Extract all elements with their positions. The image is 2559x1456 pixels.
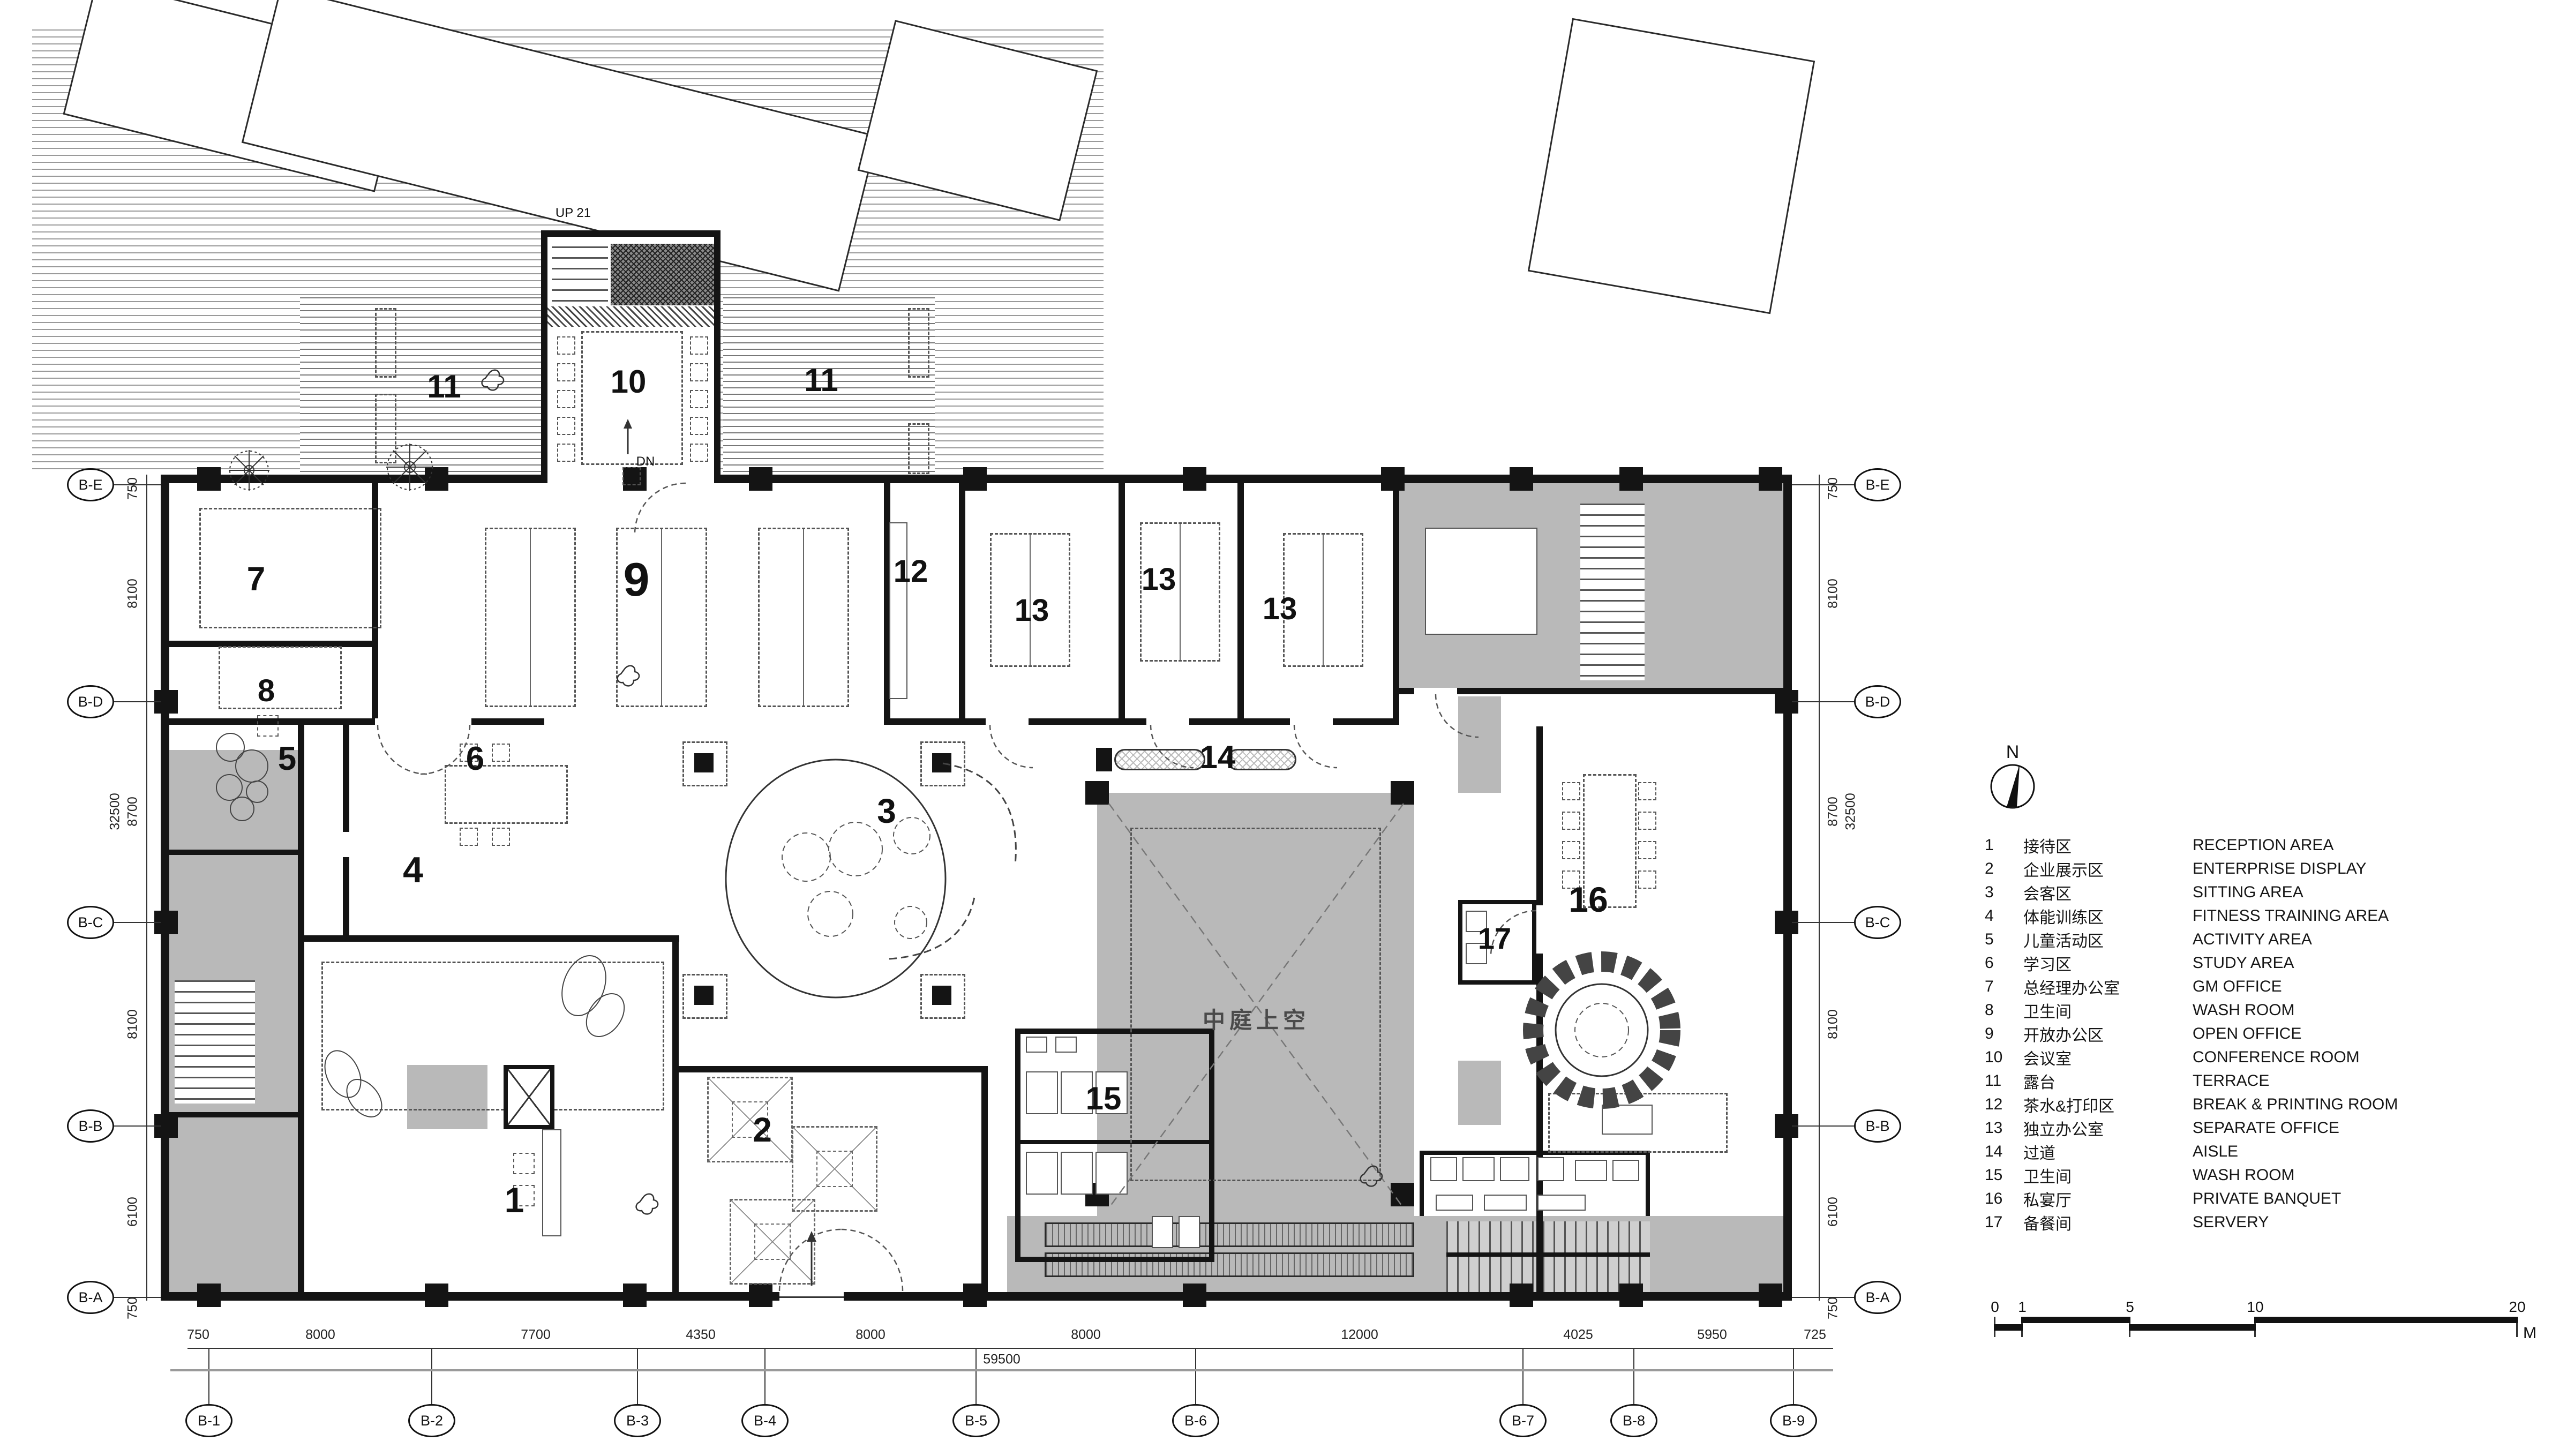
dim-bottom-0: 750: [187, 1329, 209, 1342]
grid-bubble-b4: B-4: [741, 1404, 789, 1437]
grid-bubble-bb-left: B-B: [67, 1109, 114, 1143]
dim-right-3: 8100: [1827, 1009, 1840, 1039]
legend-en: STUDY AREA: [2193, 954, 2413, 972]
dim-bottom-6: 12000: [1341, 1329, 1378, 1342]
dim-right-total: 32500: [1844, 793, 1858, 830]
legend-no: 2: [1985, 860, 2023, 878]
legend-row: 10会议室CONFERENCE ROOM: [1985, 1046, 2413, 1069]
legend-row: 15卫生间WASH ROOM: [1985, 1164, 2413, 1187]
legend-no: 17: [1985, 1213, 2023, 1232]
dim-left-0: 750: [126, 477, 140, 500]
stair-up-label: UP 21: [556, 207, 591, 220]
legend-en: TERRACE: [2193, 1072, 2413, 1090]
legend-zh: 过道: [2023, 1140, 2193, 1164]
grid-bubble-b6: B-6: [1172, 1404, 1219, 1437]
room-label-5: 5: [278, 742, 296, 776]
dimension-line-bottom: [187, 1348, 1833, 1349]
legend-zh: 备餐间: [2023, 1211, 2193, 1234]
legend-zh: 独立办公室: [2023, 1116, 2193, 1140]
legend-zh: 体能训练区: [2023, 904, 2193, 928]
dim-right-2: 8700: [1827, 797, 1840, 827]
legend-zh: 企业展示区: [2023, 857, 2193, 881]
legend-en: PRIVATE BANQUET: [2193, 1190, 2413, 1208]
north-arrow-icon: [1991, 765, 2034, 808]
legend-row: 16私宴厅PRIVATE BANQUET: [1985, 1187, 2413, 1211]
legend-en: SERVERY: [2193, 1213, 2413, 1232]
dim-left-4: 6100: [126, 1197, 140, 1227]
legend-row: 17备餐间SERVERY: [1985, 1211, 2413, 1234]
legend: 1接待区RECEPTION AREA 2企业展示区ENTERPRISE DISP…: [1985, 834, 2413, 1234]
dim-left-3: 8100: [126, 1009, 140, 1039]
legend-en: SITTING AREA: [2193, 883, 2413, 902]
legend-row: 12茶水&打印区BREAK & PRINTING ROOM: [1985, 1093, 2413, 1116]
legend-en: CONFERENCE ROOM: [2193, 1048, 2413, 1067]
north-label: N: [2006, 743, 2020, 761]
dim-right-1: 8100: [1827, 579, 1840, 609]
legend-en: AISLE: [2193, 1143, 2413, 1161]
atrium-void-label: 中庭上空: [1203, 1009, 1310, 1032]
room-label-3: 3: [877, 794, 896, 828]
grid-bubble-bc-right: B-C: [1854, 906, 1901, 939]
legend-no: 15: [1985, 1166, 2023, 1184]
dim-right-0: 750: [1827, 477, 1840, 500]
legend-row: 13独立办公室SEPARATE OFFICE: [1985, 1116, 2413, 1140]
scale-segment: [2021, 1317, 2130, 1323]
room-label-13b: 13: [1142, 564, 1176, 595]
legend-zh: 卫生间: [2023, 1164, 2193, 1187]
legend-no: 10: [1985, 1048, 2023, 1067]
legend-zh: 学习区: [2023, 951, 2193, 975]
room-label-17: 17: [1478, 924, 1511, 954]
plan-overlay-graphics: [0, 0, 2559, 1456]
dim-bottom-1: 8000: [305, 1329, 335, 1342]
room-label-7: 7: [247, 563, 265, 596]
room-label-12: 12: [894, 556, 928, 587]
grid-bubble-b2: B-2: [408, 1404, 455, 1437]
legend-zh: 总经理办公室: [2023, 975, 2193, 999]
legend-zh: 儿童活动区: [2023, 928, 2193, 951]
grid-bubble-be-right: B-E: [1854, 468, 1901, 501]
legend-row: 11露台TERRACE: [1985, 1069, 2413, 1093]
tree-icon: [229, 444, 433, 491]
legend-row: 6学习区STUDY AREA: [1985, 951, 2413, 975]
legend-no: 1: [1985, 836, 2023, 854]
scale-segment: [2129, 1324, 2256, 1331]
room-label-11-left: 11: [427, 371, 461, 403]
legend-row: 5儿童活动区ACTIVITY AREA: [1985, 928, 2413, 951]
flow-arrows: [624, 419, 816, 1286]
legend-row: 9开放办公区OPEN OFFICE: [1985, 1022, 2413, 1046]
legend-zh: 茶水&打印区: [2023, 1093, 2193, 1116]
grid-bubble-ba-right: B-A: [1854, 1281, 1901, 1314]
room-label-14: 14: [1200, 741, 1236, 774]
legend-en: ACTIVITY AREA: [2193, 930, 2413, 949]
room-label-13a: 13: [1015, 595, 1049, 626]
dim-bottom-total: 59500: [983, 1353, 1020, 1367]
scale-segment: [2254, 1317, 2518, 1323]
legend-zh: 露台: [2023, 1069, 2193, 1093]
room-label-11-right: 11: [804, 364, 838, 396]
legend-no: 4: [1985, 907, 2023, 925]
dim-bottom-8: 5950: [1697, 1329, 1727, 1342]
legend-zh: 私宴厅: [2023, 1187, 2193, 1211]
grid-bubble-bd-left: B-D: [67, 685, 114, 718]
dim-bottom-9: 725: [1804, 1329, 1826, 1342]
legend-zh: 开放办公区: [2023, 1022, 2193, 1046]
grid-bubble-b9: B-9: [1770, 1404, 1817, 1437]
legend-zh: 会客区: [2023, 881, 2193, 904]
dimension-line-left: [146, 475, 147, 1301]
legend-no: 11: [1985, 1072, 2023, 1090]
legend-row: 14过道AISLE: [1985, 1140, 2413, 1164]
legend-no: 3: [1985, 883, 2023, 902]
scale-label-0: 0: [1991, 1300, 1999, 1315]
legend-row: 1接待区RECEPTION AREA: [1985, 834, 2413, 857]
scale-label-5: 5: [2126, 1300, 2134, 1315]
grid-bubble-be-left: B-E: [67, 468, 114, 501]
grid-bubble-b1: B-1: [185, 1404, 232, 1437]
grid-bubble-bb-right: B-B: [1854, 1109, 1901, 1143]
banquet-round-table: [1533, 962, 1670, 1099]
dim-right-5: 750: [1827, 1297, 1840, 1319]
stair-dn-label: DN: [636, 455, 655, 468]
grid-bubble-bc-left: B-C: [67, 906, 114, 939]
dim-bottom-3: 4350: [686, 1329, 716, 1342]
legend-zh: 卫生间: [2023, 999, 2193, 1022]
room-label-1: 1: [505, 1182, 524, 1218]
door-swings: [378, 483, 1536, 1291]
legend-row: 2企业展示区ENTERPRISE DISPLAY: [1985, 857, 2413, 881]
scale-unit: M: [2523, 1324, 2537, 1342]
legend-en: OPEN OFFICE: [2193, 1025, 2413, 1043]
scale-bar: 0 1 5 10 20 M: [1982, 1296, 2550, 1345]
dim-bottom-4: 8000: [855, 1329, 885, 1342]
legend-en: SEPARATE OFFICE: [2193, 1119, 2413, 1137]
room-label-6: 6: [466, 742, 484, 776]
dim-bottom-2: 7700: [521, 1329, 551, 1342]
grid-bubble-b3: B-3: [614, 1404, 661, 1437]
room-label-13c: 13: [1263, 594, 1297, 625]
room-label-9: 9: [624, 556, 650, 603]
room-label-4: 4: [403, 852, 423, 888]
legend-no: 9: [1985, 1025, 2023, 1043]
dim-left-1: 8100: [126, 579, 140, 609]
legend-row: 8卫生间WASH ROOM: [1985, 999, 2413, 1022]
room-label-10: 10: [611, 366, 647, 398]
dim-left-total: 32500: [109, 793, 122, 830]
legend-en: GM OFFICE: [2193, 978, 2413, 996]
legend-en: BREAK & PRINTING ROOM: [2193, 1095, 2413, 1114]
room-label-2: 2: [753, 1113, 772, 1147]
dimension-line-bottom-overall: [170, 1369, 1833, 1371]
floor-plan-sheet: 1 2 3 4 5 6 7 8 9 10 11 11 12 13 13 13 1…: [0, 0, 2559, 1456]
legend-no: 16: [1985, 1190, 2023, 1208]
atrium-void-marks: [1109, 804, 1404, 1208]
dim-bottom-7: 4025: [1563, 1329, 1593, 1342]
activity-area-toys: [216, 733, 268, 821]
dim-bottom-5: 8000: [1071, 1329, 1101, 1342]
grid-bubble-b5: B-5: [952, 1404, 1000, 1437]
legend-en: WASH ROOM: [2193, 1001, 2413, 1019]
legend-no: 5: [1985, 930, 2023, 949]
legend-row: 4体能训练区FITNESS TRAINING AREA: [1985, 904, 2413, 928]
legend-en: RECEPTION AREA: [2193, 836, 2413, 854]
sitting-area-rug: [726, 760, 1016, 997]
legend-zh: 接待区: [2023, 834, 2193, 857]
legend-zh: 会议室: [2023, 1046, 2193, 1069]
scale-segment: [1994, 1324, 2023, 1331]
grid-bubble-bd-right: B-D: [1854, 685, 1901, 718]
scale-label-20: 20: [2509, 1300, 2525, 1315]
person-figure-icon: [482, 370, 1382, 1214]
grid-bubble-b8: B-8: [1610, 1404, 1657, 1437]
legend-row: 3会客区SITTING AREA: [1985, 881, 2413, 904]
legend-en: ENTERPRISE DISPLAY: [2193, 860, 2413, 878]
scale-label-1: 1: [2018, 1300, 2027, 1315]
dim-left-5: 750: [126, 1297, 140, 1319]
legend-no: 6: [1985, 954, 2023, 972]
dim-right-4: 6100: [1827, 1197, 1840, 1227]
legend-no: 13: [1985, 1119, 2023, 1137]
dimension-line-right: [1819, 475, 1820, 1301]
room-label-15: 15: [1086, 1083, 1122, 1115]
legend-no: 12: [1985, 1095, 2023, 1114]
legend-no: 14: [1985, 1143, 2023, 1161]
fitness-mats: [318, 950, 632, 1124]
legend-en: WASH ROOM: [2193, 1166, 2413, 1184]
room-label-16: 16: [1569, 882, 1608, 917]
scale-label-10: 10: [2247, 1300, 2263, 1315]
room-label-8: 8: [258, 676, 275, 707]
legend-no: 8: [1985, 1001, 2023, 1019]
dim-left-2: 8700: [126, 797, 140, 827]
legend-row: 7总经理办公室GM OFFICE: [1985, 975, 2413, 999]
grid-bubble-ba-left: B-A: [67, 1281, 114, 1314]
grid-bubble-b7: B-7: [1499, 1404, 1547, 1437]
legend-no: 7: [1985, 978, 2023, 996]
legend-en: FITNESS TRAINING AREA: [2193, 907, 2413, 925]
